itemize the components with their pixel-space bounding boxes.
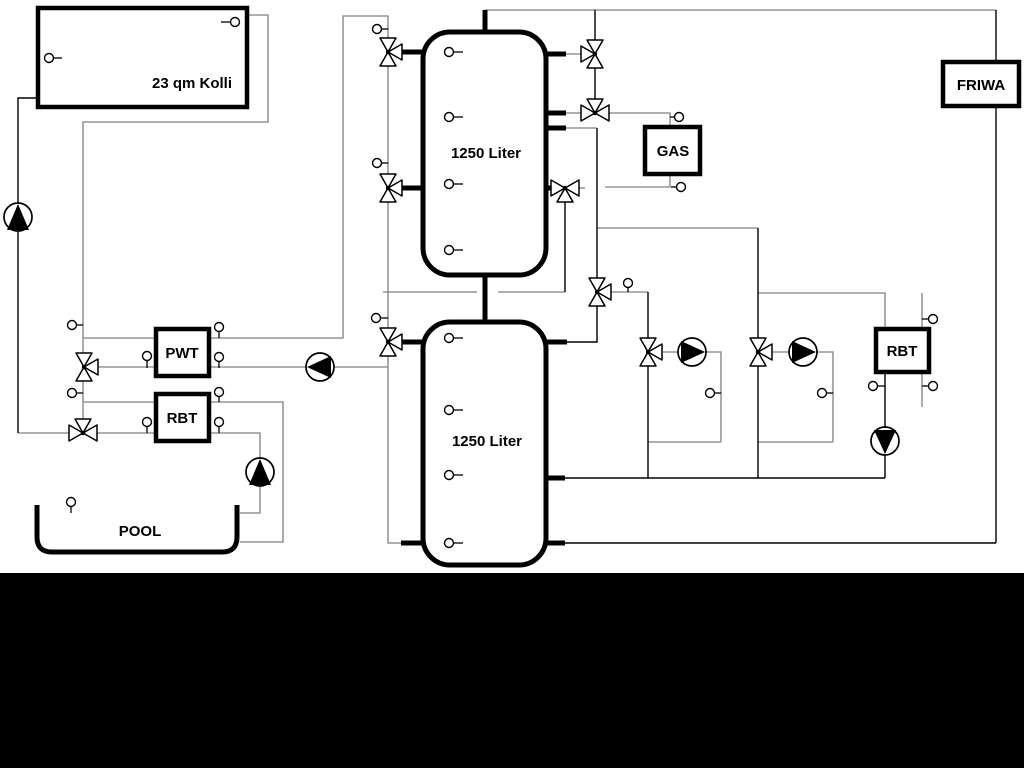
temperature-sensor-icon — [143, 352, 152, 369]
temperature-sensor-icon — [373, 159, 389, 168]
three-way-valve-icon — [750, 338, 772, 366]
temperature-sensor-icon — [670, 113, 684, 122]
temperature-sensor-icon — [68, 389, 84, 398]
upper-tank-label: 1250 Liter — [451, 145, 521, 162]
gas-label: GAS — [657, 143, 690, 160]
temperature-sensor-icon — [143, 418, 152, 434]
three-way-valve-icon — [581, 40, 603, 68]
temperature-sensor-icon — [215, 353, 224, 369]
temperature-sensor-icon — [869, 382, 886, 391]
temperature-sensor-icon — [372, 314, 389, 323]
heating-circuit-2-pump — [789, 338, 817, 366]
pwt-pump — [306, 353, 334, 381]
temperature-sensor-icon — [922, 315, 938, 324]
temperature-sensor-icon — [215, 418, 224, 434]
three-way-valve-icon — [380, 328, 402, 356]
footer-band — [0, 573, 1024, 768]
solar-collector-box — [38, 8, 247, 107]
temperature-sensor-icon — [624, 279, 633, 293]
three-way-valve-icon — [581, 99, 609, 121]
hydraulic-schematic-screen: 23 qm Kolli 1250 Liter 1250 Liter GAS FR… — [0, 0, 1024, 768]
temperature-sensor-icon — [818, 389, 834, 398]
three-way-valve-icon — [589, 278, 611, 306]
pwt-label: PWT — [165, 345, 198, 362]
lower-tank-label: 1250 Liter — [452, 433, 522, 450]
rbt-right-label: RBT — [887, 343, 918, 360]
pool-label: POOL — [119, 523, 162, 540]
rbt-right-pump — [871, 427, 899, 455]
temperature-sensor-icon — [215, 388, 224, 403]
temperature-sensor-icon — [373, 25, 389, 34]
three-way-valve-icon — [380, 174, 402, 202]
three-way-valve-icon — [640, 338, 662, 366]
temperature-sensor-icon — [706, 389, 722, 398]
three-way-valve-icon — [76, 353, 98, 381]
pool-pump — [246, 458, 274, 486]
temperature-sensor-icon — [922, 382, 938, 391]
solar-return-pump — [4, 203, 32, 231]
friwa-label: FRIWA — [957, 77, 1005, 94]
temperature-sensor-icon — [215, 323, 224, 339]
temperature-sensor-icon — [671, 183, 686, 192]
three-way-valve-icon — [380, 38, 402, 66]
rbt-left-label: RBT — [167, 410, 198, 427]
heating-circuit-1-pump — [678, 338, 706, 366]
temperature-sensor-icon — [68, 321, 84, 330]
hydraulic-schematic: 23 qm Kolli 1250 Liter 1250 Liter GAS FR… — [0, 0, 1024, 768]
three-way-valve-icon — [551, 180, 579, 202]
collector-label: 23 qm Kolli — [152, 75, 232, 92]
three-way-valve-icon — [69, 419, 97, 441]
temperature-sensor-icon — [67, 498, 76, 514]
